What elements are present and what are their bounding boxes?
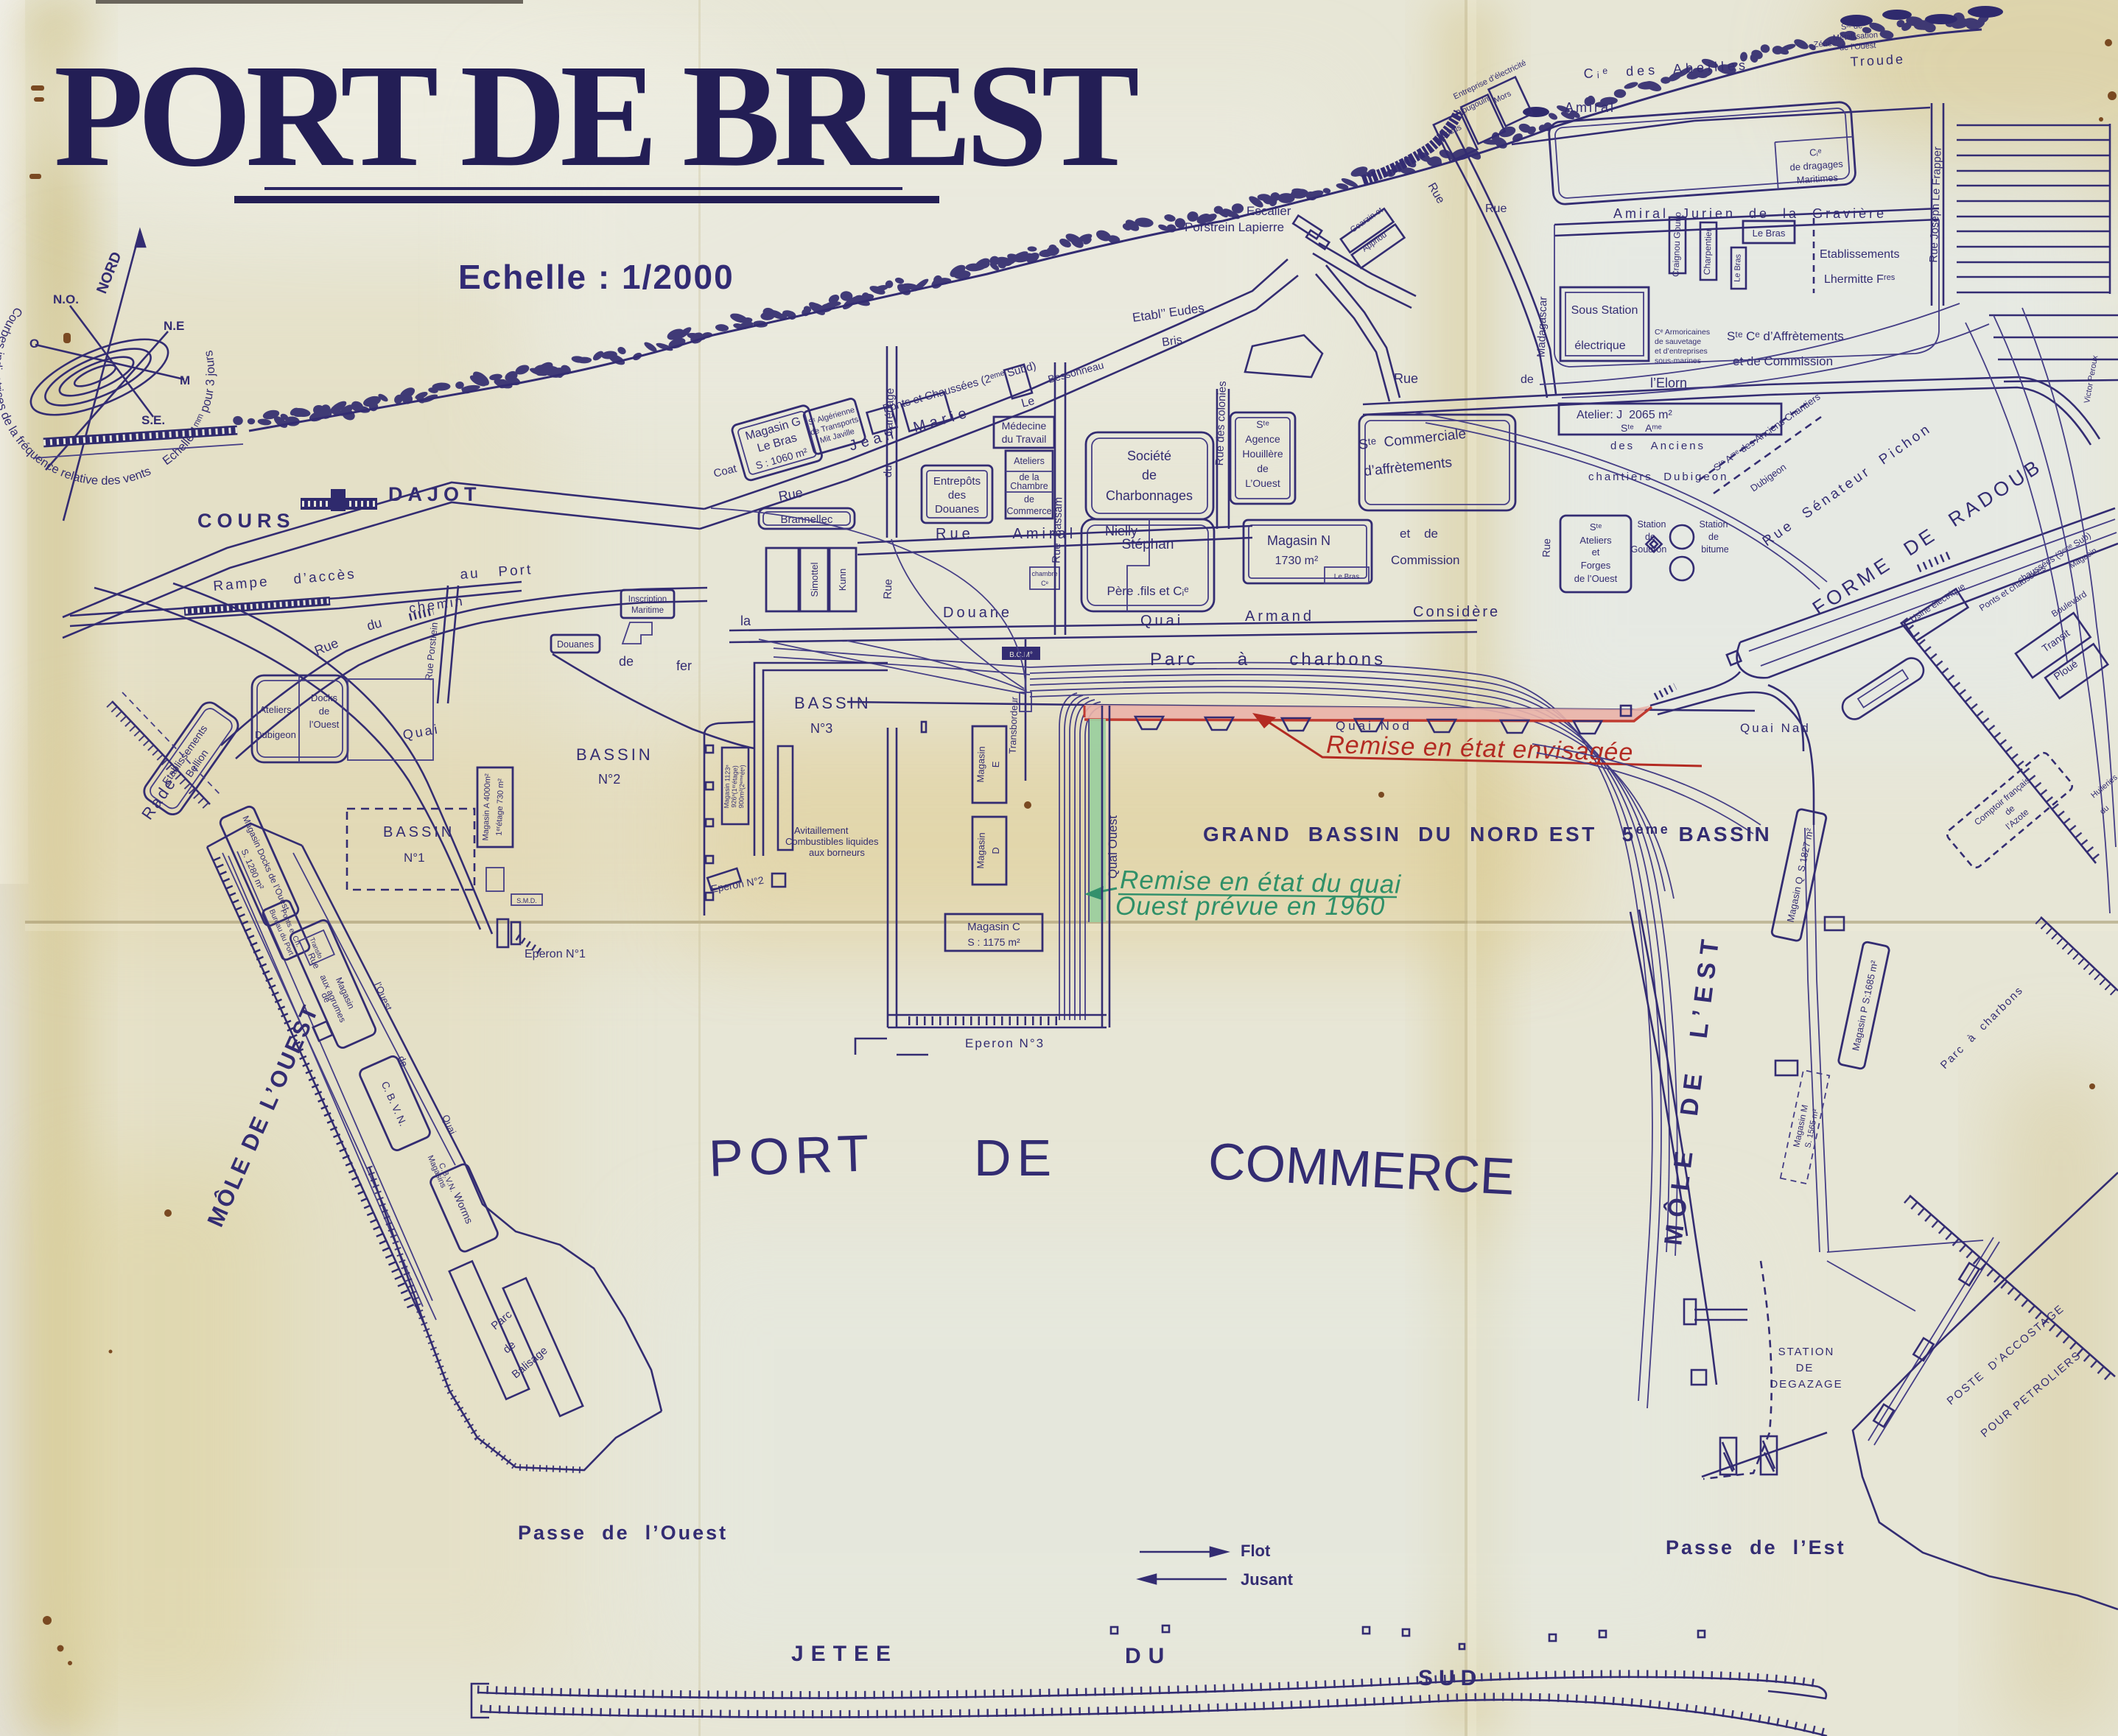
svg-text:des Anciens: des Anciens (1610, 440, 1705, 452)
svg-text:Carénage: Carénage (883, 388, 897, 437)
svg-text:Amiral: Amiral (1565, 100, 1616, 115)
svg-text:Jusant: Jusant (1241, 1570, 1294, 1589)
svg-text:Eperon N°1: Eperon N°1 (525, 948, 586, 960)
svg-text:DEGAZAGE: DEGAZAGE (1770, 1378, 1842, 1391)
svg-text:Magasin C: Magasin C (967, 921, 1020, 933)
svg-text:de: de (319, 706, 329, 717)
svg-text:Père .fils et Cᵢᵉ: Père .fils et Cᵢᵉ (1107, 584, 1188, 598)
svg-text:S.E.: S.E. (141, 413, 165, 427)
svg-text:Sᵗᵉ de: Sᵗᵉ de (1841, 21, 1863, 32)
svg-text:Parc à charbons: Parc à charbons (1150, 650, 1386, 670)
svg-text:Sᵗᵉ: Sᵗᵉ (1590, 521, 1602, 533)
svg-text:Magasin: Magasin (975, 746, 987, 783)
svg-text:DE: DE (974, 1129, 1057, 1187)
svg-text:l’Elorn: l’Elorn (1650, 376, 1687, 390)
svg-text:Etablissements: Etablissements (1820, 248, 1900, 261)
svg-text:Rue: Rue (882, 579, 895, 600)
svg-text:de: de (1024, 494, 1034, 505)
svg-text:Charpentier: Charpentier (1702, 228, 1714, 275)
svg-text:Avitaillement: Avitaillement (794, 825, 849, 836)
svg-text:Eperon N°3: Eperon N°3 (965, 1036, 1045, 1050)
svg-text:Société: Société (1127, 449, 1171, 463)
svg-text:S : 1175 m²: S : 1175 m² (967, 936, 1020, 948)
svg-text:Ateliers: Ateliers (259, 704, 292, 715)
svg-text:M: M (180, 373, 190, 387)
svg-text:Passe de l’Ouest: Passe de l’Ouest (518, 1522, 728, 1544)
svg-text:PORT DE BREST: PORT DE BREST (54, 35, 1140, 197)
svg-text:Douanes: Douanes (935, 503, 979, 516)
svg-text:D: D (990, 847, 1001, 854)
svg-text:Station: Station (1700, 519, 1728, 530)
svg-text:N°3: N°3 (810, 721, 832, 736)
svg-text:Ateliers: Ateliers (1014, 456, 1045, 466)
svg-text:BASSIN: BASSIN (383, 824, 455, 840)
svg-text:Flot: Flot (1241, 1542, 1271, 1560)
svg-text:Quai Na‌d: Quai Na‌d (1740, 721, 1811, 735)
svg-text:Station: Station (1638, 519, 1666, 530)
svg-text:SUD: SUD (1418, 1666, 1482, 1690)
svg-text:Simottel: Simottel (809, 562, 820, 597)
svg-text:DU: DU (1125, 1644, 1171, 1668)
svg-text:Inscription: Inscription (628, 595, 667, 604)
svg-text:DAJOT: DAJOT (388, 483, 482, 505)
svg-text:Le Bras: Le Bras (1334, 573, 1359, 581)
svg-text:BASSIN: BASSIN (576, 745, 653, 764)
svg-text:Armand: Armand (1245, 608, 1314, 625)
svg-text:Commerce: Commerce (1006, 506, 1051, 516)
svg-text:Cᵉ Armoricaines: Cᵉ Armoricaines (1655, 328, 1710, 337)
svg-text:JETEE: JETEE (791, 1642, 898, 1666)
svg-text:Ouest prévue en 1960: Ouest prévue en 1960 (1115, 892, 1385, 921)
svg-text:Chambre: Chambre (1010, 481, 1048, 491)
svg-text:Cᵉ: Cᵉ (1041, 580, 1048, 587)
svg-text:Porstrein Lapierre: Porstrein Lapierre (1185, 220, 1284, 234)
svg-text:E: E (990, 761, 1001, 768)
svg-text:du Travail: du Travail (1002, 433, 1047, 445)
svg-text:Sᵗᵉ Cᵉ d’Affrètements: Sᵗᵉ Cᵉ d’Affrètements (1727, 329, 1844, 343)
svg-text:Lhermitte Fʳᵉˢ: Lhermitte Fʳᵉˢ (1824, 273, 1896, 286)
svg-text:Magasin: Magasin (975, 832, 987, 869)
svg-text:Médecine: Médecine (1002, 420, 1047, 432)
svg-text:Magasin N: Magasin N (1267, 533, 1330, 548)
svg-text:de: de (1708, 532, 1719, 542)
svg-text:Combustibles liquides: Combustibles liquides (785, 836, 879, 847)
svg-text:BASSIN: BASSIN (794, 694, 872, 712)
svg-text:Echelle : 1/2000: Echelle : 1/2000 (458, 258, 734, 296)
svg-text:Rue: Rue (1485, 203, 1507, 215)
svg-text:Le Bras: Le Bras (1733, 253, 1742, 282)
svg-text:Considère: Considère (1413, 604, 1500, 620)
svg-text:GRAND BASSIN DU NORD EST: GRAND BASSIN DU NORD EST 5ème BASSIN (1203, 822, 1772, 846)
svg-text:Douanes: Douanes (557, 639, 594, 650)
svg-text:Maritime: Maritime (631, 606, 664, 615)
svg-text:Zéné: Zéné (1813, 39, 1832, 49)
svg-text:Stéphan: Stéphan (1122, 537, 1174, 552)
svg-text:Entrepôts: Entrepôts (933, 475, 981, 488)
svg-text:des: des (948, 489, 966, 502)
svg-text:Nielly: Nielly (1105, 524, 1137, 538)
svg-text:Amiral Jurien de la Graviè: Amiral Jurien de la Gravière (1613, 206, 1887, 221)
svg-text:de: de (1521, 373, 1534, 386)
svg-text:chantiers Dubigeon: chantiers Dubigeon (1588, 471, 1728, 483)
svg-text:STATION: STATION (1778, 1346, 1835, 1358)
svg-text:Sᵗᵉ: Sᵗᵉ (1256, 418, 1269, 430)
svg-text:Commission: Commission (1391, 553, 1460, 567)
svg-text:Cᵢᵉ: Cᵢᵉ (1809, 147, 1822, 158)
svg-text:Charbonnages: Charbonnages (1106, 488, 1193, 503)
svg-text:électrique: électrique (1574, 340, 1625, 352)
svg-text:Atelier: J 2065 m²: Atelier: J 2065 m² (1577, 409, 1673, 421)
svg-text:Escalier: Escalier (1246, 204, 1291, 218)
svg-text:Ateliers: Ateliers (1579, 535, 1612, 546)
svg-text:DE: DE (1796, 1362, 1814, 1374)
svg-text:Rue: Rue (1394, 371, 1418, 386)
svg-text:N°2: N°2 (598, 772, 620, 787)
svg-text:Madagascar: Madagascar (1535, 296, 1550, 357)
svg-text:COURS: COURS (197, 510, 295, 532)
svg-text:L’Ouest: L’Ouest (1245, 477, 1280, 489)
svg-text:Sᵗᵉ Aᵐᵉ: Sᵗᵉ Aᵐᵉ (1621, 422, 1662, 434)
svg-text:sous-marines: sous-marines (1655, 356, 1701, 365)
svg-text:Forges: Forges (1581, 560, 1611, 571)
svg-text:de: de (1142, 468, 1157, 482)
svg-text:S.M.D.: S.M.D. (516, 897, 537, 904)
svg-text:Dubigeon: Dubigeon (255, 729, 296, 740)
svg-text:Agence: Agence (1245, 433, 1280, 445)
svg-text:Le Bras: Le Bras (1753, 228, 1786, 239)
svg-text:Rue Amiral: Rue Amiral (936, 526, 1076, 542)
svg-text:aux borneurs: aux borneurs (809, 847, 865, 858)
svg-text:de sauvetage: de sauvetage (1655, 337, 1701, 346)
svg-text:Kunn: Kunn (837, 569, 848, 591)
svg-text:fer: fer (676, 658, 692, 673)
svg-text:et: et (1592, 547, 1600, 558)
svg-text:O: O (29, 337, 39, 351)
svg-text:900m²(2ᵉᵐᵉétⁿ): 900m²(2ᵉᵐᵉétⁿ) (737, 765, 746, 808)
svg-text:la: la (740, 614, 751, 628)
svg-text:et d’entreprises: et d’entreprises (1655, 347, 1708, 356)
svg-text:Houillère: Houillère (1242, 448, 1283, 460)
svg-text:du: du (882, 465, 895, 477)
svg-text:Quai Ouest: Quai Ouest (1106, 815, 1120, 879)
svg-text:bitume: bitume (1701, 544, 1729, 555)
svg-text:Passe de l’Est: Passe de l’Est (1666, 1536, 1846, 1558)
svg-text:Sous Station: Sous Station (1571, 304, 1638, 317)
svg-text:chambre: chambre (1031, 570, 1057, 577)
svg-text:Quai: Quai (1140, 613, 1183, 629)
svg-text:et de: et de (1400, 527, 1438, 541)
svg-text:1730 m²: 1730 m² (1275, 555, 1319, 567)
svg-text:N°1: N°1 (404, 851, 425, 865)
svg-text:Troude: Troude (1850, 52, 1905, 69)
svg-text:Docks: Docks (311, 692, 338, 703)
svg-text:N.E: N.E (164, 319, 184, 333)
svg-text:PORT: PORT (708, 1124, 876, 1187)
svg-text:de: de (1257, 463, 1269, 474)
svg-text:de l’Ouest: de l’Ouest (1574, 573, 1618, 584)
svg-text:N.O.: N.O. (53, 292, 79, 306)
svg-text:Rue: Rue (1540, 538, 1553, 558)
svg-text:l’Ouest: l’Ouest (309, 719, 340, 730)
svg-text:de: de (619, 654, 634, 669)
